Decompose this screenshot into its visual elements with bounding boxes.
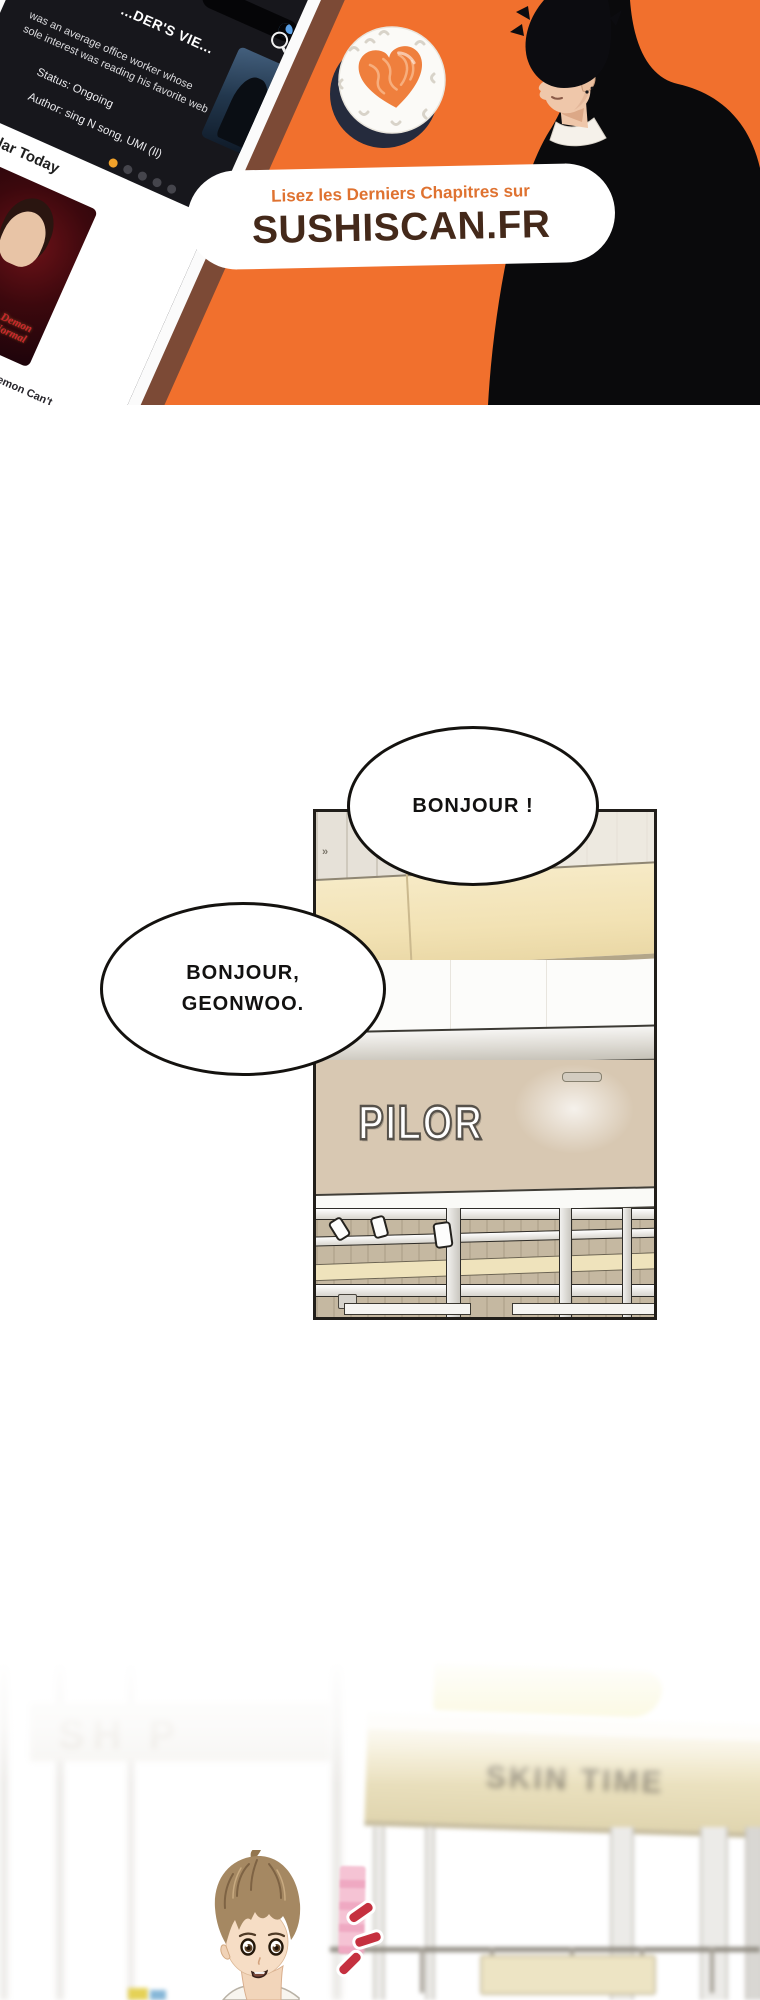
glass-frame-post xyxy=(373,1827,385,2000)
sushi-heart-icon xyxy=(322,18,457,153)
comic-panel-mall-scene: SH P SKIN TIME xyxy=(0,1655,760,2000)
cabinet-mark: » xyxy=(322,846,328,858)
popular-today-heading: Popular Today xyxy=(0,120,62,177)
speech-bubble-bonjour-geonwoo: BONJOUR, GEONWOO. xyxy=(100,902,386,1076)
handrail xyxy=(330,1947,760,1952)
boy-character-art xyxy=(193,1850,325,2000)
metal-rail xyxy=(313,1284,657,1297)
lower-shelf-bar xyxy=(512,1303,657,1315)
ad-text-pill[interactable]: Lisez les Derniers Chapitres sur SUSHISC… xyxy=(186,163,616,271)
carousel-dot xyxy=(136,170,148,182)
cover-art-title: the Heavenly Demon Can't Live a Normal L… xyxy=(0,283,40,360)
carousel-dot xyxy=(122,164,134,176)
glass-frame-post xyxy=(700,1827,728,2000)
lower-shelf-bar xyxy=(344,1303,471,1315)
cover-character-art xyxy=(0,204,54,272)
speech-bubble-bonjour: BONJOUR ! xyxy=(347,726,599,886)
carousel-dot-active xyxy=(107,157,119,169)
bench xyxy=(480,1955,656,1995)
carousel-dot xyxy=(151,177,163,189)
wall-seam xyxy=(546,960,547,1032)
spotlight xyxy=(432,1221,453,1249)
pilor-store-sign: PILOR xyxy=(337,1096,505,1151)
glass-frame-post xyxy=(425,1827,435,2000)
white-fade-overlay xyxy=(0,1655,760,1785)
wall-seam xyxy=(450,960,451,1032)
background-object xyxy=(150,1990,166,2000)
webtoon-page: ...DER'S VIE... was an average office wo… xyxy=(0,0,760,2000)
sushiscan-ad-banner[interactable]: ...DER'S VIE... was an average office wo… xyxy=(0,0,760,405)
tan-sign-wall: PILOR xyxy=(316,1060,654,1194)
ad-site-name: SUSHISCAN.FR xyxy=(252,202,551,252)
handrail-post xyxy=(420,1947,424,1993)
store-interior-lower xyxy=(316,1208,654,1320)
carousel-dot xyxy=(166,183,178,195)
metal-rail xyxy=(313,1208,657,1220)
manga-cover-heavenly-demon: the Heavenly Demon Can't Live a Normal L… xyxy=(0,162,98,368)
speech-text-line2: GEONWOO. xyxy=(182,989,304,1020)
comic-panel-pilor: » PILOR xyxy=(313,809,657,1320)
ceiling-light-fixture xyxy=(562,1072,602,1082)
speech-text: BONJOUR ! xyxy=(412,795,533,818)
glass-frame-post xyxy=(745,1827,760,2000)
background-object xyxy=(128,1988,148,2000)
ad-tagline: Lisez les Derniers Chapitres sur xyxy=(271,181,530,206)
speech-text-line1: BONJOUR, xyxy=(186,958,300,989)
handrail-post xyxy=(710,1947,714,1993)
